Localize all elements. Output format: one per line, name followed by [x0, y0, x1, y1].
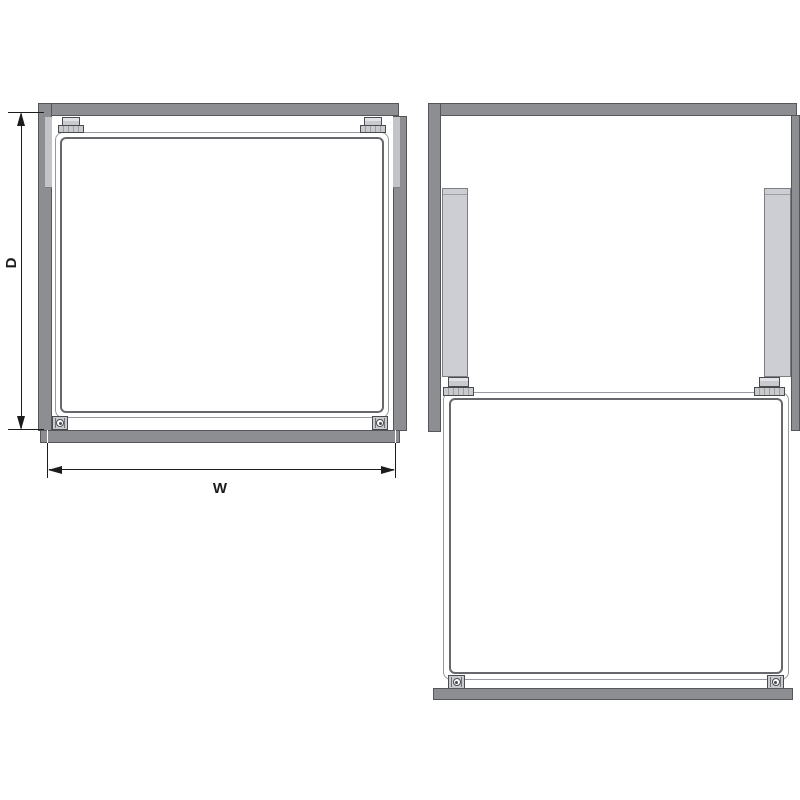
rail-seam	[765, 194, 790, 195]
width-label: W	[208, 479, 232, 497]
front-view-bottom-rail	[433, 688, 793, 700]
front-view-left-roller-fitting	[448, 675, 465, 689]
roller-hub-icon	[455, 681, 458, 684]
roller-wheel-icon	[376, 419, 384, 427]
arrow-down-icon	[17, 416, 25, 430]
roller-hub-icon	[59, 422, 62, 425]
depth-extension-bottom	[8, 429, 44, 430]
width-extension-right	[395, 443, 396, 478]
top-view-right-rail-strip	[393, 117, 400, 188]
front-view-right-rail-foot-block	[759, 377, 780, 387]
roller-wheel-icon	[772, 678, 780, 686]
top-view-right-clamp-base	[360, 125, 386, 133]
roller-hub-icon	[379, 422, 382, 425]
front-view-frame-right-side	[791, 115, 800, 431]
front-view-right-rail-foot-base	[754, 387, 785, 396]
roller-hub-icon	[774, 681, 777, 684]
arrow-left-icon	[48, 466, 62, 474]
cabinet-pullout-diagram: D W	[0, 0, 800, 800]
top-view-left-roller-fitting	[52, 416, 68, 430]
roller-wheel-icon	[56, 419, 64, 427]
arrow-up-icon	[17, 112, 25, 126]
top-view-frame-front	[38, 103, 399, 116]
front-view-left-rail-foot-base	[443, 387, 474, 396]
front-view-frame-left-side	[428, 103, 441, 432]
front-view-frame-top	[429, 103, 797, 116]
rail-seam	[443, 194, 467, 195]
top-view-left-rail-strip	[45, 117, 52, 188]
top-view-left-clamp-block	[62, 117, 80, 126]
arrow-right-icon	[381, 466, 395, 474]
depth-label: D	[3, 250, 19, 276]
front-view-right-rail	[764, 188, 791, 377]
width-extension-gap-right	[395, 430, 396, 443]
front-view-left-rail	[442, 188, 468, 377]
width-extension-gap-left	[47, 430, 48, 443]
top-view-frame-bottom-rail	[40, 430, 400, 443]
depth-dimension-line	[21, 114, 22, 428]
top-view-right-roller-fitting	[372, 416, 388, 430]
top-view-right-clamp-block	[364, 117, 382, 126]
width-dimension-line	[49, 469, 394, 470]
front-view-basket-inner	[449, 398, 783, 674]
top-view-tray-inner	[60, 137, 384, 413]
front-view-right-roller-fitting	[767, 675, 784, 689]
top-view-left-clamp-base	[58, 125, 84, 133]
roller-wheel-icon	[453, 678, 461, 686]
front-view-left-rail-foot-block	[448, 377, 469, 387]
depth-extension-top	[8, 112, 44, 113]
